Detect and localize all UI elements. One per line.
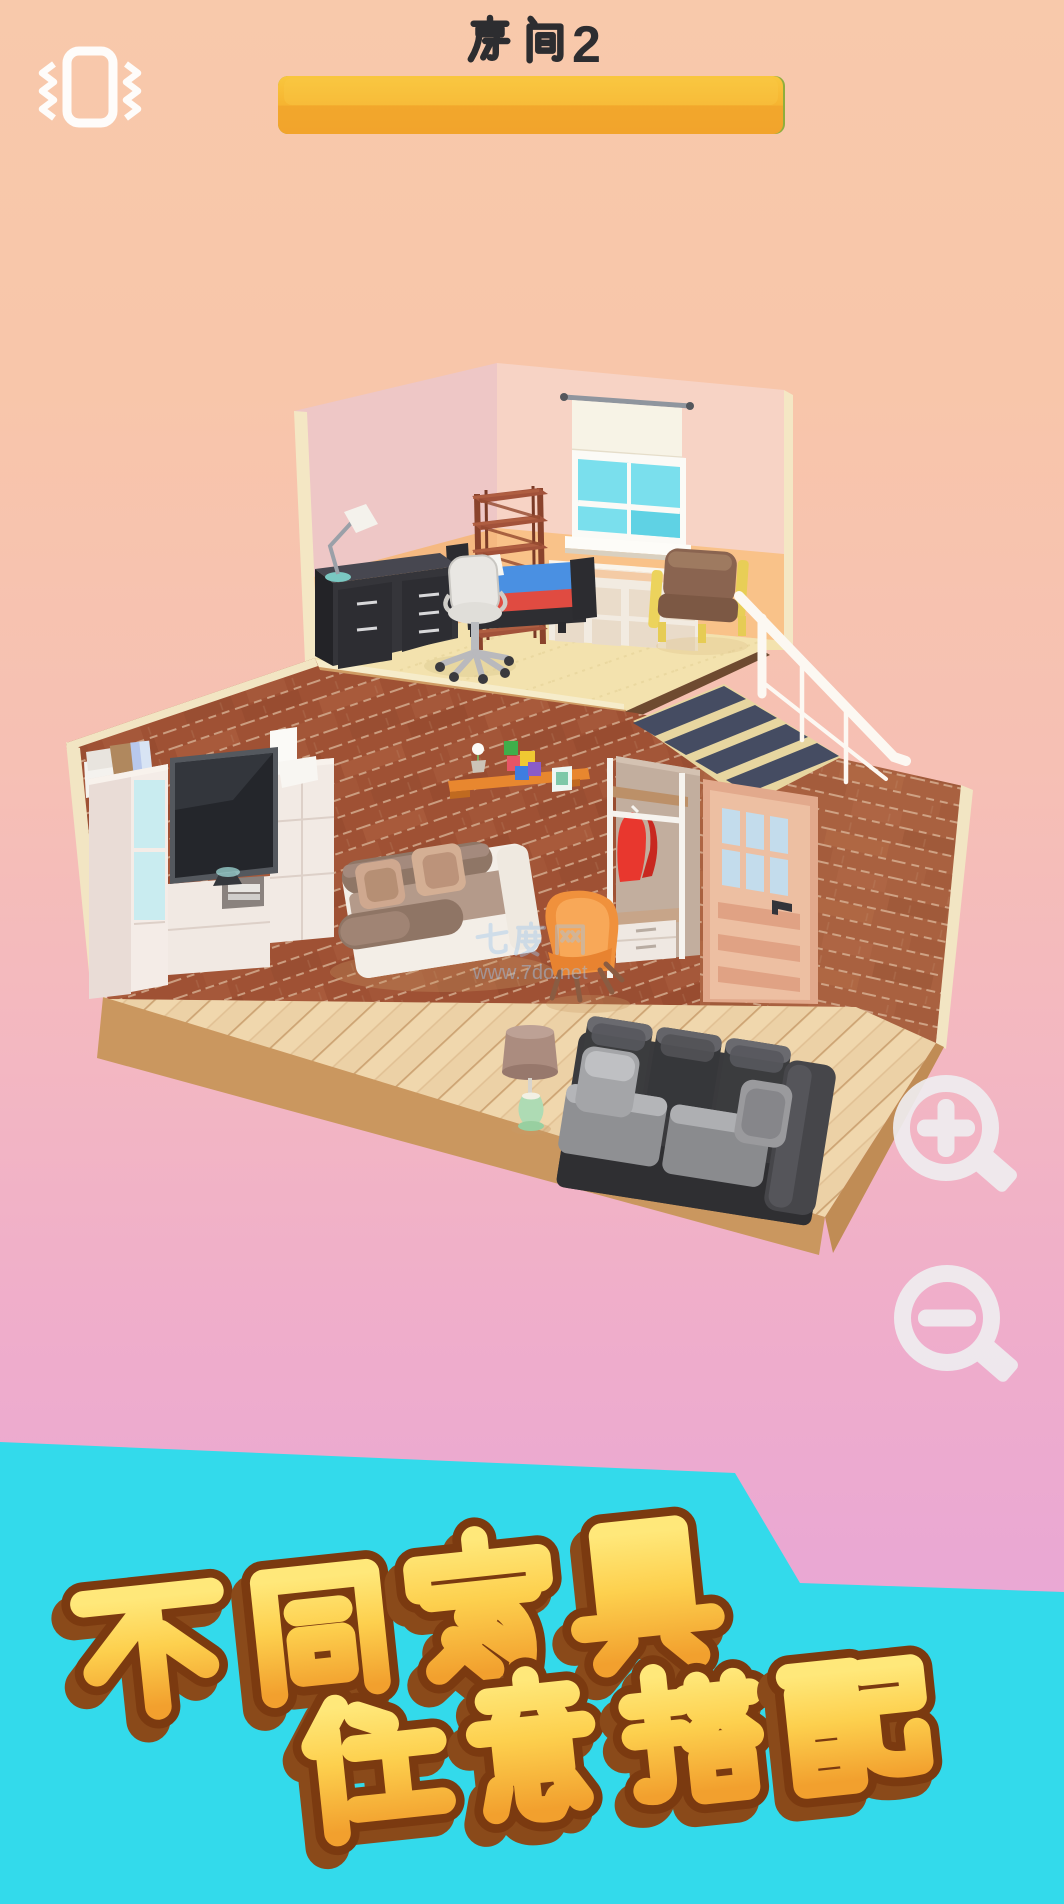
svg-text:2: 2	[572, 16, 601, 74]
svg-text:www.7do.net: www.7do.net	[472, 962, 588, 984]
